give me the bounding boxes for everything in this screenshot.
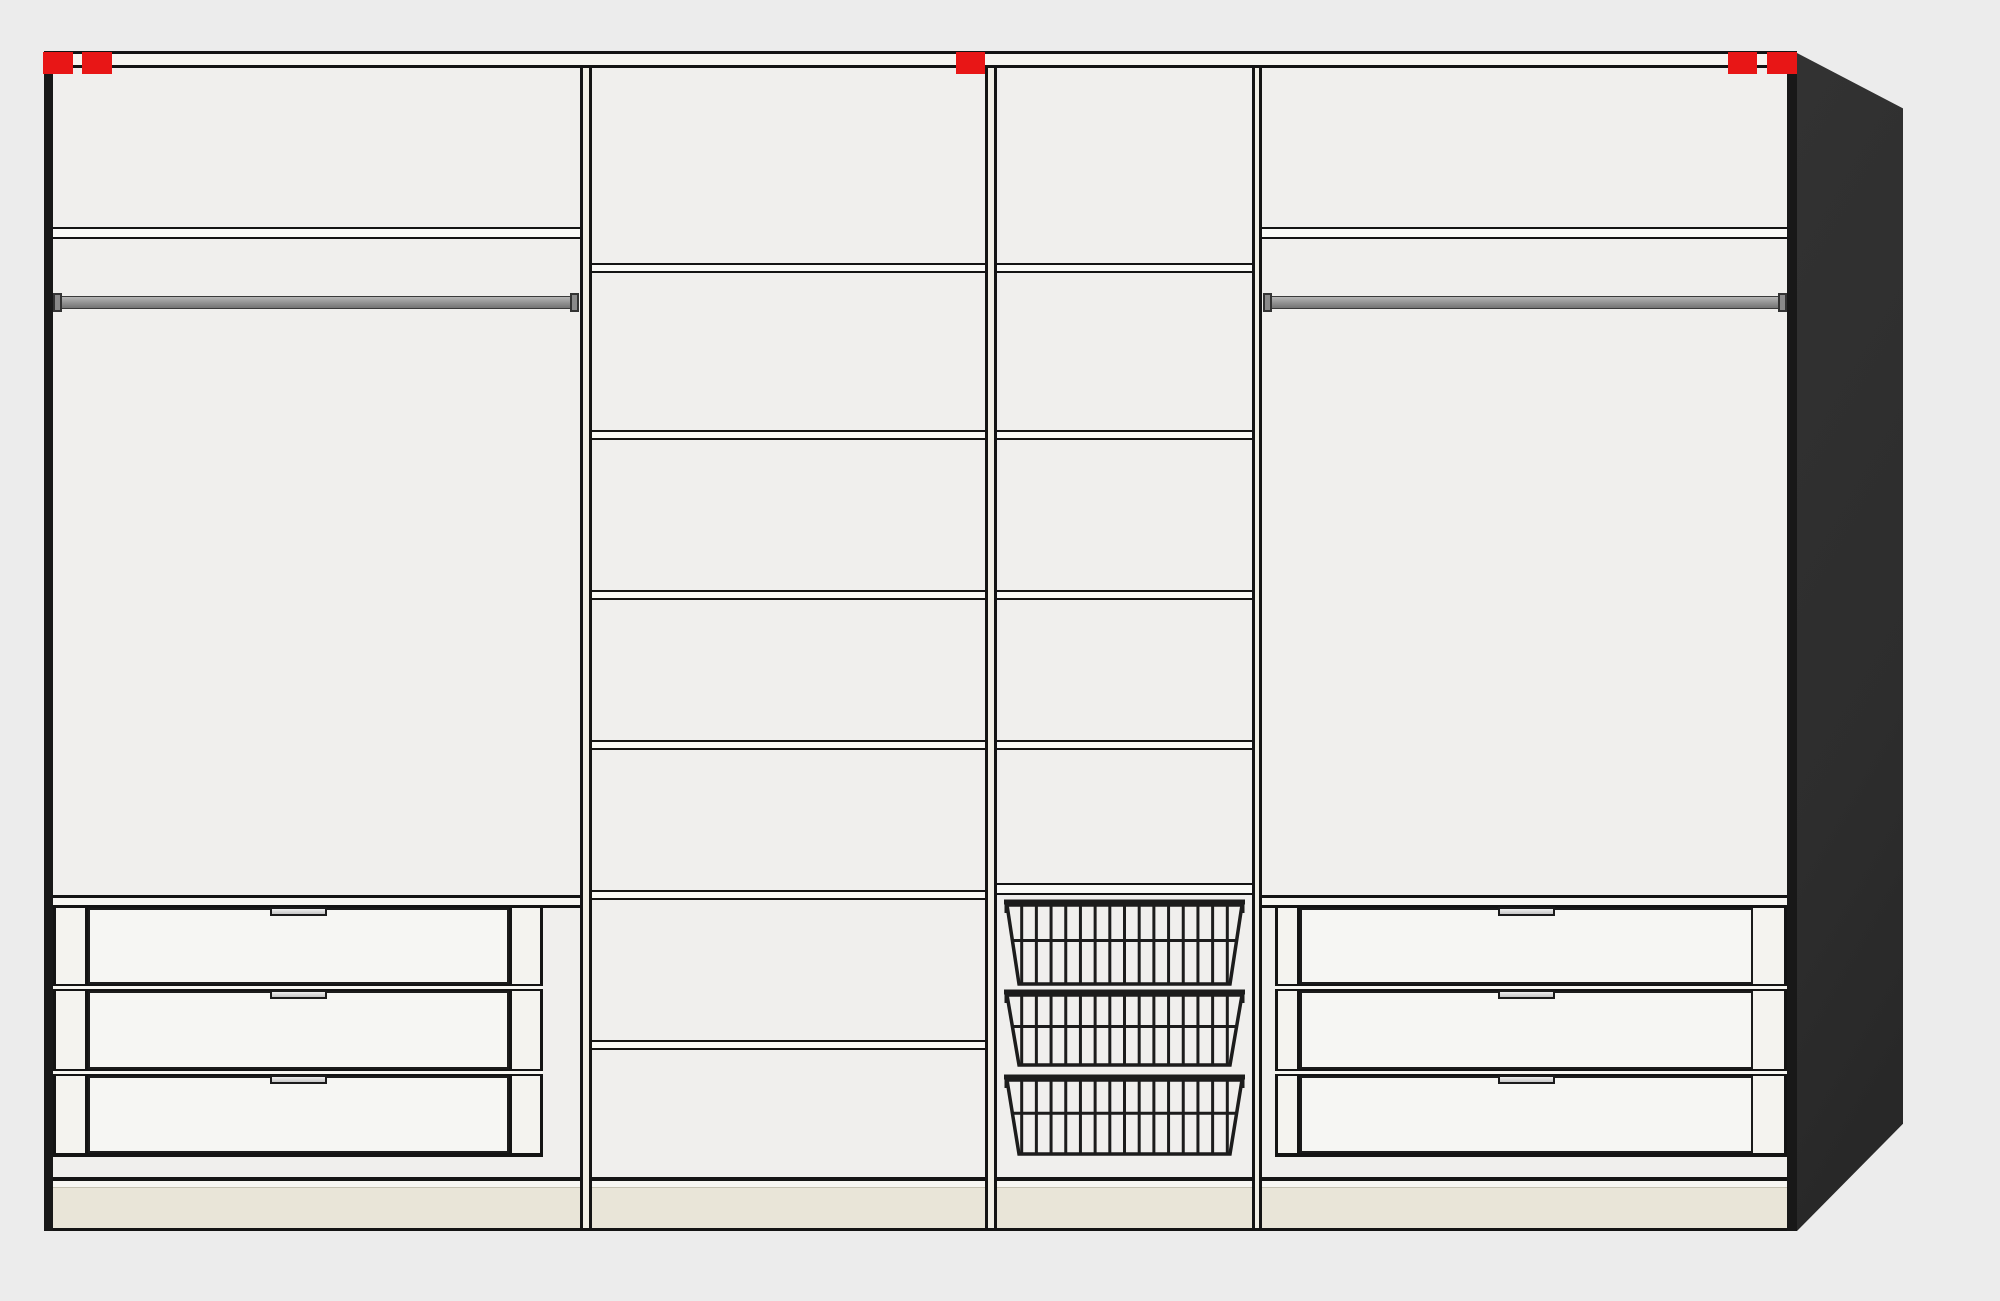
top-shelf-hanging-right[interactable] [1262, 227, 1787, 239]
shelf-shelf-column-6[interactable] [592, 1040, 985, 1050]
drawer-front-hanging-right-3[interactable] [1300, 1076, 1753, 1153]
shelf-basket-column-1[interactable] [997, 263, 1252, 273]
side-panel-perspective [1797, 53, 1903, 1231]
red-marker-5[interactable] [1767, 52, 1797, 74]
top-frame-band [44, 51, 1797, 68]
shelf-shelf-column-2[interactable] [592, 430, 985, 440]
drawer-unit-right-frame-hanging-right [1750, 908, 1787, 1153]
wardrobe-planner-canvas [0, 0, 2000, 1301]
clothes-rail-hanging-left[interactable] [60, 296, 572, 309]
drawer-handle-hanging-right-1[interactable] [1498, 907, 1555, 916]
section-divider-2 [985, 54, 997, 1228]
clothes-rail-cap-0-0 [53, 293, 62, 312]
bottom-rail [53, 1177, 1787, 1188]
shelf-shelf-column-1[interactable] [592, 263, 985, 273]
red-marker-1[interactable] [43, 52, 73, 74]
drawer-front-hanging-right-1[interactable] [1300, 908, 1753, 984]
shelf-basket-column-2[interactable] [997, 430, 1252, 440]
shelf-basket-column-4[interactable] [997, 740, 1252, 750]
drawer-handle-hanging-left-2[interactable] [270, 990, 327, 999]
drawer-front-hanging-left-3[interactable] [88, 1076, 509, 1153]
section-divider-3 [1252, 54, 1262, 1228]
drawer-front-hanging-left-2[interactable] [88, 991, 509, 1069]
basket-top-shelf[interactable] [997, 883, 1252, 895]
red-marker-4[interactable] [1728, 52, 1757, 74]
drawer-handle-hanging-left-1[interactable] [270, 907, 327, 916]
shelf-shelf-column-3[interactable] [592, 590, 985, 600]
red-marker-2[interactable] [82, 52, 112, 74]
wire-basket-3[interactable] [997, 1073, 1252, 1157]
clothes-rail-hanging-right[interactable] [1271, 296, 1781, 309]
left-side-wall [44, 51, 53, 1231]
drawer-unit-left-frame-hanging-right [1275, 908, 1300, 1153]
red-marker-3[interactable] [956, 52, 985, 74]
drawer-front-hanging-left-1[interactable] [88, 908, 509, 984]
drawer-front-hanging-right-2[interactable] [1300, 991, 1753, 1069]
bottom-edge-line [44, 1228, 1797, 1231]
wire-basket-1[interactable] [997, 898, 1252, 987]
drawer-handle-hanging-right-3[interactable] [1498, 1075, 1555, 1084]
wire-basket-2[interactable] [997, 988, 1252, 1068]
shelf-basket-column-3[interactable] [997, 590, 1252, 600]
section-divider-1 [580, 54, 592, 1228]
shelf-shelf-column-4[interactable] [592, 740, 985, 750]
shelf-shelf-column-5[interactable] [592, 890, 985, 900]
drawer-unit-bottom-edge-hanging-right [1275, 1153, 1787, 1157]
top-shelf-hanging-left[interactable] [53, 227, 580, 239]
drawer-handle-hanging-right-2[interactable] [1498, 990, 1555, 999]
drawer-handle-hanging-left-3[interactable] [270, 1075, 327, 1084]
clothes-rail-cap-3-0 [1263, 293, 1272, 312]
drawer-unit-right-frame-hanging-left [509, 908, 543, 1153]
drawer-unit-left-frame-hanging-left [53, 908, 88, 1153]
right-front-edge [1787, 51, 1797, 1231]
drawer-unit-bottom-edge-hanging-left [53, 1153, 543, 1157]
clothes-rail-cap-3-1 [1778, 293, 1787, 312]
plinth-panel [53, 1188, 1787, 1228]
clothes-rail-cap-0-1 [570, 293, 579, 312]
